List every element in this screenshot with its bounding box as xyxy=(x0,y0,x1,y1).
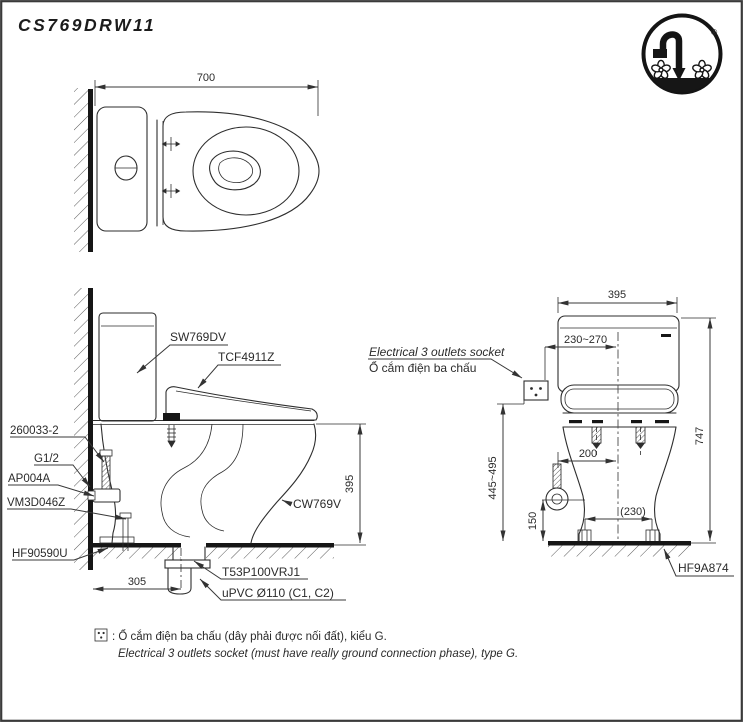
dim-150: 150 xyxy=(527,512,539,530)
wall-hatch xyxy=(74,88,88,252)
water-saving-logo-icon: ® xyxy=(644,16,721,93)
dim-700: 700 xyxy=(197,72,215,84)
top-view: 700 xyxy=(74,72,319,252)
label-tank: SW769DV xyxy=(170,330,226,344)
floor-line xyxy=(206,543,334,548)
dim-305: 305 xyxy=(128,576,146,588)
front-view: 395 xyxy=(368,289,734,576)
label-floor-set: HF9A874 xyxy=(678,561,729,575)
footnote: : Ổ cắm điện ba chấu (dây phải được nối … xyxy=(95,629,518,660)
tank-plan xyxy=(97,107,147,231)
tank-front xyxy=(558,316,679,392)
dim-395-side: 395 xyxy=(344,475,356,493)
tank-side xyxy=(99,313,156,421)
floor-hatch xyxy=(206,548,334,559)
label-floor-flange: HF90590U xyxy=(12,548,68,560)
label-supply-hose: 260033-2 xyxy=(10,425,59,437)
dim-445-495: 445~495 xyxy=(487,456,499,499)
label-drain-joint: T53P100VRJ1 xyxy=(222,565,300,579)
drawing-canvas: CS769DRW11 xyxy=(0,0,743,722)
label-bowl: CW769V xyxy=(293,497,341,511)
dim-bolt-230: (230) xyxy=(620,506,646,518)
trapway-curve xyxy=(201,424,243,531)
seat-lid-plan xyxy=(163,112,319,231)
pedestal-right xyxy=(655,427,676,543)
side-view: 305 395 SW769DV TCF4911Z 260033-2 G1/2 A… xyxy=(7,288,366,600)
floor-line xyxy=(548,541,691,546)
washlet-hinge-box xyxy=(163,413,180,421)
dim-747: 747 xyxy=(694,427,706,445)
stop-valve-front xyxy=(546,488,568,510)
floor-flange xyxy=(100,537,134,543)
wall-line xyxy=(88,89,93,252)
footnote-line-vi: : Ổ cắm điện ba chấu (dây phải được nối … xyxy=(112,630,387,643)
label-socket-en: Electrical 3 outlets socket xyxy=(369,345,505,359)
tank-button xyxy=(661,334,671,337)
floor-line xyxy=(93,543,181,548)
label-drain-pipe: uPVC Ø110 (C1, C2) xyxy=(222,586,334,600)
label-thread: G1/2 xyxy=(34,453,59,465)
registered-mark: ® xyxy=(711,27,718,37)
label-socket-vi: Ổ cắm điện ba chấu xyxy=(369,360,476,375)
dim-395-front: 395 xyxy=(608,289,626,301)
seat-bolt xyxy=(636,427,645,455)
washlet-side xyxy=(166,387,317,420)
wall-line xyxy=(88,288,93,570)
footnote-line-en: Electrical 3 outlets socket (must have r… xyxy=(118,648,518,660)
wall-hatch xyxy=(74,288,88,570)
label-stop-valve: AP004A xyxy=(8,473,51,485)
drawing-title: CS769DRW11 xyxy=(18,15,156,35)
label-washlet: TCF4911Z xyxy=(218,350,274,364)
supply-rod xyxy=(553,464,561,488)
technical-drawing-page: CS769DRW11 xyxy=(0,0,743,722)
seat-bolt xyxy=(167,425,176,447)
floor-hatch xyxy=(548,546,691,557)
bowl-front-curve xyxy=(251,424,316,543)
label-connector: VM3D046Z xyxy=(7,497,65,509)
socket-icon xyxy=(524,381,548,400)
pedestal-left xyxy=(563,427,584,543)
socket-note-icon xyxy=(95,629,107,641)
dim-230-270: 230~270 xyxy=(564,334,607,346)
dim-200: 200 xyxy=(579,448,597,460)
stop-valve xyxy=(93,489,120,502)
